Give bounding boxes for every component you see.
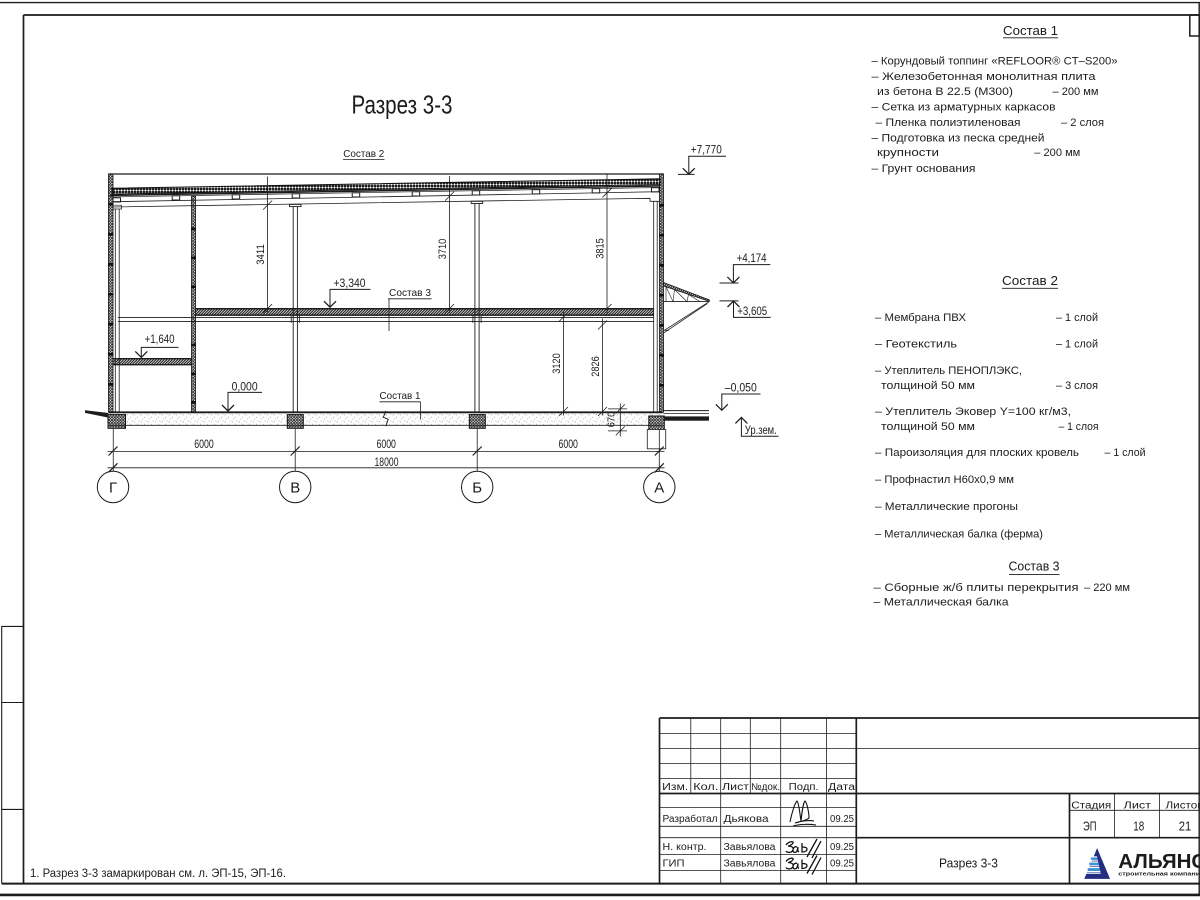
svg-text:– Подготовка из песка средней: – Подготовка из песка средней: [872, 133, 1045, 145]
svg-text:3710: 3710: [437, 239, 449, 260]
svg-text:Кол.: Кол.: [693, 782, 718, 793]
svg-text:+3,605: +3,605: [737, 306, 767, 318]
svg-text:– 1 слоя: – 1 слоя: [1059, 421, 1099, 433]
svg-text:Дьякова: Дьякова: [724, 814, 770, 825]
svg-text:Состав 1: Состав 1: [1003, 24, 1058, 38]
svg-text:6000: 6000: [194, 437, 214, 451]
svg-text:Стадия: Стадия: [1071, 801, 1111, 812]
svg-text:– Корундовый топпинг «REFLOOR®: – Корундовый топпинг «REFLOOR® CT–S200»: [872, 56, 1118, 68]
svg-text:+4,174: +4,174: [737, 253, 768, 265]
svg-text:2826: 2826: [590, 356, 602, 377]
svg-text:– Металлическая балка (ферма): – Металлическая балка (ферма): [875, 529, 1043, 541]
svg-text:– Металлическая балка: – Металлическая балка: [874, 597, 1010, 609]
svg-text:Состав 1: Состав 1: [380, 390, 421, 402]
svg-text:Состав 3: Состав 3: [389, 287, 431, 299]
svg-text:– Сетка из арматурных каркасов: – Сетка из арматурных каркасов: [872, 102, 1056, 114]
svg-text:– 1 слой: – 1 слой: [1056, 312, 1098, 324]
svg-text:– 200 мм: – 200 мм: [1053, 86, 1099, 98]
svg-text:21: 21: [1179, 819, 1192, 833]
svg-text:– Геотекстиль: – Геотекстиль: [875, 339, 957, 351]
svg-text:В: В: [290, 479, 300, 496]
svg-text:– Пленка полиэтиленовая: – Пленка полиэтиленовая: [876, 117, 1021, 129]
svg-text:670: 670: [606, 412, 618, 428]
svg-text:ГИП: ГИП: [663, 859, 685, 870]
svg-text:1. Разрез 3-3 замаркирован см.: 1. Разрез 3-3 замаркирован см. л. ЭП-15,…: [30, 868, 286, 880]
svg-text:– 200 мм: – 200 мм: [1034, 147, 1080, 159]
svg-text:+1,640: +1,640: [145, 334, 175, 346]
svg-text:09.25: 09.25: [830, 842, 855, 853]
svg-text:– Пароизоляция для плоских кро: – Пароизоляция для плоских кровель: [875, 447, 1079, 459]
svg-text:– Профнастил Н60х0,9 мм: – Профнастил Н60х0,9 мм: [875, 474, 1014, 486]
svg-text:Г: Г: [109, 479, 117, 496]
svg-text:3815: 3815: [595, 238, 607, 259]
svg-text:+7,770: +7,770: [691, 145, 722, 157]
svg-text:строительная компания: строительная компания: [1118, 872, 1200, 878]
svg-text:– 3 слоя: – 3 слоя: [1056, 380, 1098, 392]
svg-text:АЛЬЯНС: АЛЬЯНС: [1118, 851, 1200, 873]
svg-text:крупности: крупности: [877, 147, 939, 159]
svg-text:Лист: Лист: [722, 782, 750, 793]
svg-text:Разрез 3-3: Разрез 3-3: [352, 90, 453, 120]
svg-text:– 1 слой: – 1 слой: [1056, 339, 1098, 351]
svg-text:Разработал: Разработал: [663, 814, 718, 825]
svg-text:Состав 2: Состав 2: [1002, 274, 1058, 288]
svg-text:Ур.зем.: Ур.зем.: [745, 425, 777, 437]
svg-text:Изм.: Изм.: [662, 782, 688, 793]
svg-text:Н. контр.: Н. контр.: [663, 842, 707, 853]
svg-text:– Металлические прогоны: – Металлические прогоны: [875, 501, 1018, 513]
svg-text:Разрез 3-3: Разрез 3-3: [939, 855, 998, 870]
svg-text:Состав 2: Состав 2: [343, 148, 384, 160]
svg-text:Завьялова: Завьялова: [724, 842, 777, 853]
svg-text:– Сборные ж/б плиты перекрытия: – Сборные ж/б плиты перекрытия: [874, 582, 1079, 594]
svg-text:– Утеплитель ПЕНОПЛЭКС,: – Утеплитель ПЕНОПЛЭКС,: [875, 365, 1022, 377]
svg-text:– Грунт основания: – Грунт основания: [872, 163, 976, 175]
svg-text:3411: 3411: [255, 244, 267, 265]
svg-text:18000: 18000: [375, 455, 399, 469]
svg-text:18: 18: [1133, 819, 1144, 833]
svg-text:ЭП: ЭП: [1083, 819, 1097, 833]
svg-text:– 220 мм: – 220 мм: [1084, 582, 1130, 594]
svg-text:толщиной 50 мм: толщиной 50 мм: [881, 421, 975, 433]
svg-text:Б: Б: [472, 479, 482, 496]
svg-text:– Железобетонная монолитная п: – Железобетонная монолитная плита: [872, 71, 1097, 83]
svg-text:Дата: Дата: [828, 782, 856, 793]
svg-text:№док.: №док.: [751, 782, 780, 793]
svg-text:– Утеплитель Эковер Y=100 кг/м: – Утеплитель Эковер Y=100 кг/м3,: [875, 406, 1071, 418]
svg-text:–0,050: –0,050: [725, 382, 757, 394]
svg-text:толщиной 50 мм: толщиной 50 мм: [881, 380, 975, 392]
svg-text:09.25: 09.25: [830, 859, 855, 870]
svg-text:А: А: [654, 479, 664, 496]
svg-text:Листов: Листов: [1166, 801, 1200, 812]
svg-text:– 1 слой: – 1 слой: [1105, 447, 1146, 459]
svg-text:3120: 3120: [551, 353, 563, 374]
svg-text:– 2 слоя: – 2 слоя: [1061, 117, 1104, 129]
svg-text:– Мембрана ПВХ: – Мембрана ПВХ: [875, 312, 967, 324]
svg-text:Лист: Лист: [1124, 801, 1152, 812]
svg-text:Состав 3: Состав 3: [1009, 560, 1060, 574]
svg-text:Подп.: Подп.: [789, 782, 819, 793]
svg-text:Завьялова: Завьялова: [724, 859, 777, 870]
svg-text:+3,340: +3,340: [334, 278, 366, 290]
svg-text:0,000: 0,000: [232, 381, 258, 393]
svg-text:6000: 6000: [558, 437, 578, 451]
svg-text:6000: 6000: [376, 437, 396, 451]
svg-text:из бетона В 22.5 (М300): из бетона В 22.5 (М300): [877, 86, 1013, 98]
svg-text:09.25: 09.25: [830, 814, 855, 825]
